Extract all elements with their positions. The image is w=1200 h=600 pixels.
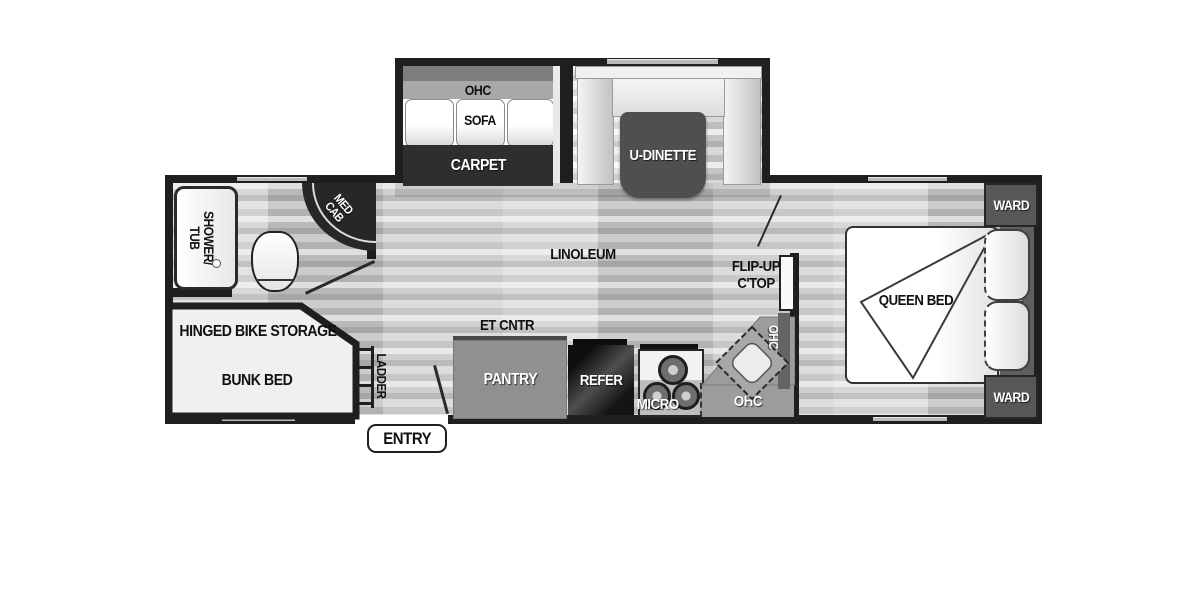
entry-badge: ENTRY <box>367 424 447 453</box>
ward-rear-label: WARD <box>993 389 1029 405</box>
window-bedroom-top <box>868 177 947 181</box>
window-bedroom-bottom <box>873 417 947 421</box>
ladder-rung <box>356 348 374 351</box>
bunk-bed-label: BUNK BED <box>217 372 296 390</box>
tub-drain-icon <box>212 259 221 268</box>
carpet-area: CARPET <box>403 145 553 186</box>
wardrobe-rear: WARD <box>984 375 1038 419</box>
refrigerator: REFER <box>568 345 634 415</box>
wall-slide-right <box>762 58 770 183</box>
ladder-label: LADDER <box>374 350 390 403</box>
linoleum-label: LINOLEUM <box>535 246 632 263</box>
flip-up-label: FLIP-UP C'TOP <box>724 258 787 293</box>
micro-label: MICRO <box>637 396 679 413</box>
ladder-rail <box>356 346 359 408</box>
ladder-rung <box>356 402 374 405</box>
wall-slide-left <box>395 58 403 183</box>
ladder-rung <box>356 384 374 387</box>
ladder-rung <box>356 366 374 369</box>
et-cntr-label: ET CNTR <box>459 317 556 334</box>
ohc-wall-label: OHC <box>767 319 781 354</box>
sofa-cushion-left <box>405 99 454 147</box>
dinette-table: U-DINETTE <box>620 112 706 198</box>
ladder-icon <box>356 346 374 408</box>
slide-gap <box>553 62 560 183</box>
pantry-label: PANTRY <box>483 371 537 389</box>
sofa-ohc-label: OHC <box>465 82 491 98</box>
u-dinette-label: U-DINETTE <box>630 147 696 164</box>
toilet-seat-line <box>256 279 294 281</box>
window-dinette <box>607 59 718 64</box>
wall-slide-divider <box>560 58 573 183</box>
entry-label: ENTRY <box>383 429 431 449</box>
bunk-bed-area <box>163 298 363 420</box>
dinette-bench-right <box>723 78 761 185</box>
bike-storage-label: HINGED BIKE STORAGE <box>188 323 329 341</box>
pantry-cabinet: PANTRY <box>453 336 567 419</box>
sofa-ohc-cabinet: OHC <box>403 81 553 99</box>
dinette-bench-left <box>577 78 614 185</box>
carpet-label: CARPET <box>450 157 505 175</box>
window-bath <box>237 177 307 181</box>
queen-bed-label: QUEEN BED <box>872 292 960 309</box>
refer-label: REFER <box>580 372 623 389</box>
pillow <box>984 301 1030 371</box>
toilet-icon <box>251 231 299 292</box>
ward-front-label: WARD <box>993 197 1029 213</box>
sofa-label: SOFA <box>449 112 511 128</box>
burner-icon <box>658 355 688 385</box>
sofa-cushion-right <box>507 99 554 147</box>
wardrobe-front: WARD <box>984 183 1038 227</box>
pillow <box>984 229 1030 301</box>
rv-floorplan: OHC SOFA CARPET U-DINETTE SHOWER/ TUB <box>0 0 1200 600</box>
